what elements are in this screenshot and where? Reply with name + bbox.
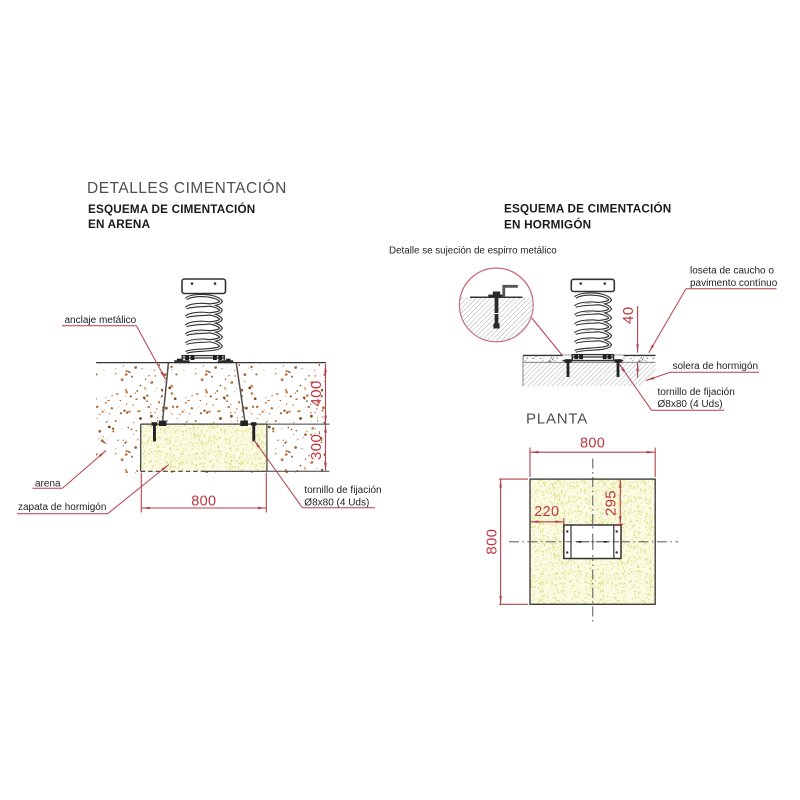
svg-text:PLANTA: PLANTA (526, 411, 588, 428)
svg-text:Ø8x80 (4 Uds): Ø8x80 (4 Uds) (658, 399, 723, 410)
svg-text:ESQUEMA DE CIMENTACIÓN: ESQUEMA DE CIMENTACIÓN (504, 203, 671, 216)
svg-text:400: 400 (308, 380, 325, 406)
svg-text:800: 800 (191, 493, 216, 509)
svg-text:solera de hormigón: solera de hormigón (673, 361, 759, 372)
svg-text:loseta de caucho o: loseta de caucho o (690, 266, 774, 277)
svg-text:anclaje metálico: anclaje metálico (65, 315, 137, 326)
svg-text:pavimento contínuo: pavimento contínuo (690, 278, 778, 289)
svg-text:220: 220 (534, 504, 559, 520)
svg-text:ESQUEMA DE CIMENTACIÓN: ESQUEMA DE CIMENTACIÓN (88, 203, 255, 216)
svg-text:Detalle se sujeción de espirro: Detalle se sujeción de espirro metálico (389, 246, 557, 257)
svg-text:40: 40 (620, 306, 637, 324)
svg-text:arena: arena (35, 478, 61, 489)
svg-text:800: 800 (580, 436, 605, 452)
svg-text:Ø8x80 (4 Uds): Ø8x80 (4 Uds) (304, 498, 369, 509)
svg-text:zapata de hormigón: zapata de hormigón (18, 502, 106, 513)
svg-text:DETALLES CIMENTACIÓN: DETALLES CIMENTACIÓN (87, 180, 287, 197)
svg-text:800: 800 (483, 529, 500, 555)
svg-text:EN HORMIGÓN: EN HORMIGÓN (504, 219, 591, 232)
svg-text:295: 295 (603, 490, 620, 516)
svg-text:300: 300 (308, 434, 325, 460)
svg-text:tornillo de fijación: tornillo de fijación (658, 387, 735, 398)
svg-text:tornillo de fijación: tornillo de fijación (304, 485, 381, 496)
svg-text:EN ARENA: EN ARENA (88, 218, 151, 231)
